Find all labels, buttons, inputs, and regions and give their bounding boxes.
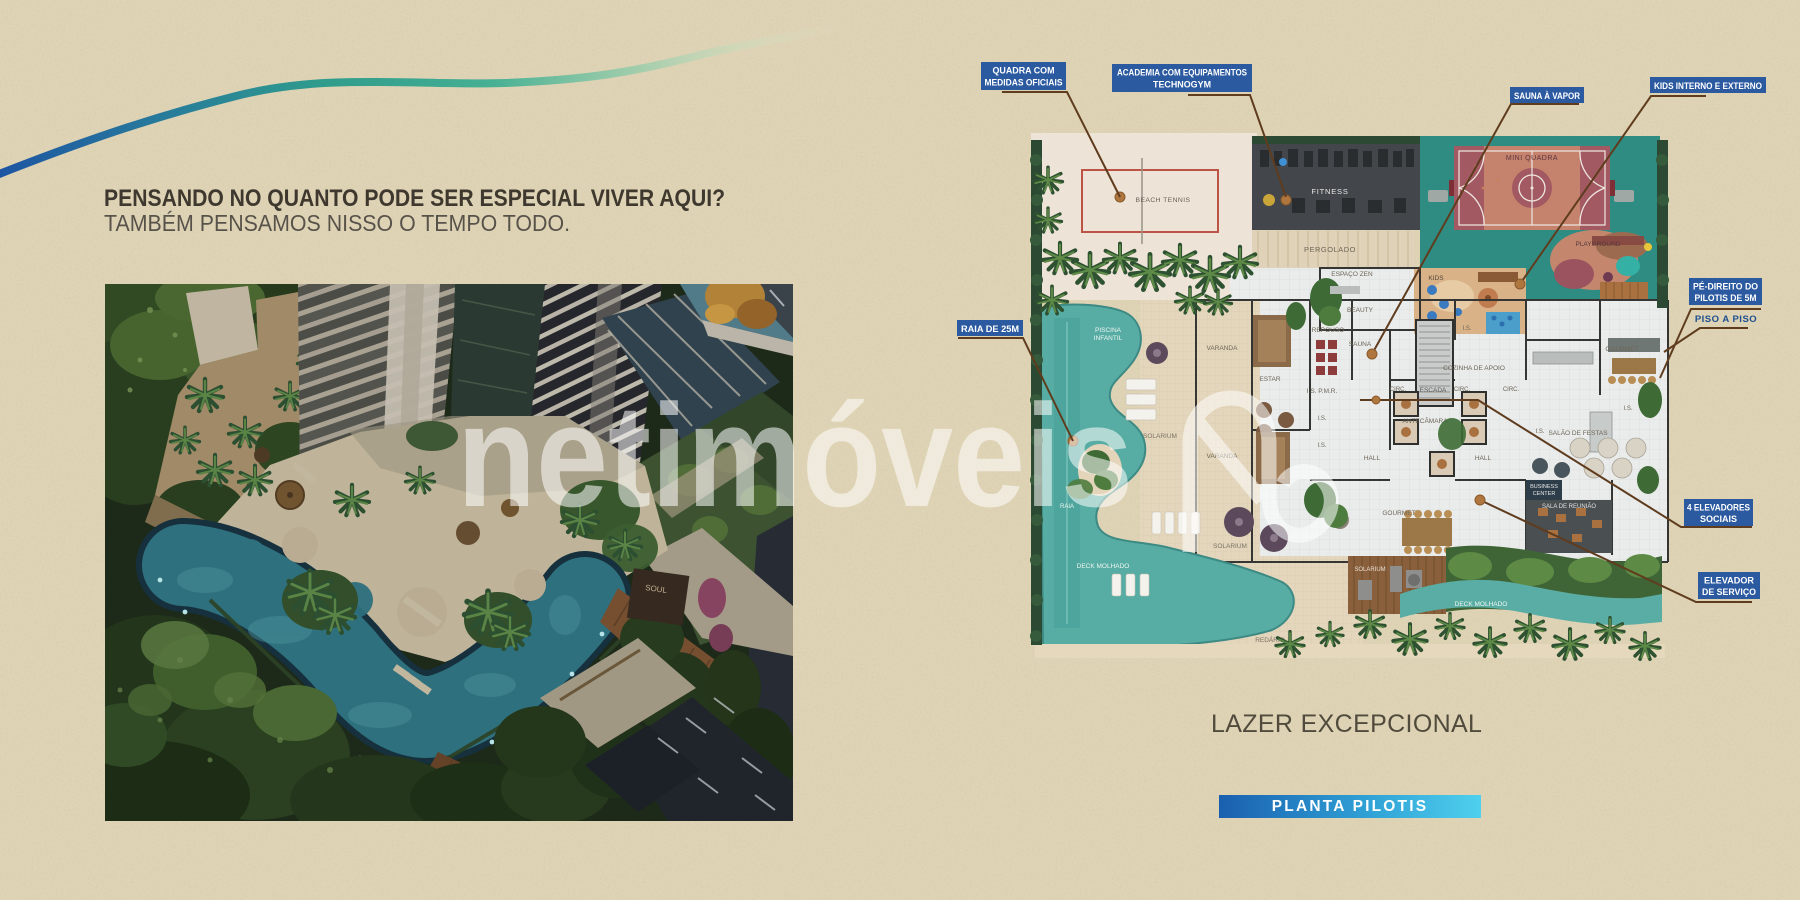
svg-text:PERGOLADO: PERGOLADO (1304, 245, 1356, 254)
svg-text:DE SERVIÇO: DE SERVIÇO (1702, 587, 1756, 597)
svg-text:PENSANDO NO QUANTO PODE SER ES: PENSANDO NO QUANTO PODE SER ESPECIAL VIV… (104, 185, 725, 212)
svg-text:KIDS INTERNO E EXTERNO: KIDS INTERNO E EXTERNO (1654, 81, 1762, 91)
svg-text:PÉ-DIREITO DO: PÉ-DIREITO DO (1693, 282, 1758, 292)
svg-text:SALA DE REUNIÃO: SALA DE REUNIÃO (1542, 503, 1596, 510)
svg-text:MEDIDAS OFICIAIS: MEDIDAS OFICIAIS (985, 78, 1063, 88)
svg-text:PLAYGROUND: PLAYGROUND (1575, 241, 1620, 248)
svg-text:SOLARIUM: SOLARIUM (1354, 567, 1385, 573)
svg-text:I.S.: I.S. (1317, 443, 1326, 449)
svg-text:DECK MOLHADO: DECK MOLHADO (1455, 601, 1508, 608)
svg-text:ELEVADOR: ELEVADOR (1704, 576, 1755, 586)
svg-text:I.S.: I.S. (1623, 406, 1632, 412)
svg-text:CIRC.: CIRC. (1503, 387, 1520, 393)
svg-text:netimóveis: netimóveis (457, 374, 1133, 537)
svg-text:DECK MOLHADO: DECK MOLHADO (1077, 563, 1130, 570)
svg-text:ACADEMIA COM EQUIPAMENTOS: ACADEMIA COM EQUIPAMENTOS (1117, 68, 1247, 78)
svg-text:GOURMET: GOURMET (1382, 510, 1415, 517)
svg-text:HALL: HALL (1475, 455, 1492, 462)
svg-text:SAUNA: SAUNA (1349, 341, 1372, 348)
svg-text:CENTER: CENTER (1533, 491, 1556, 497)
svg-text:SALÃO DE FESTAS: SALÃO DE FESTAS (1548, 428, 1608, 437)
svg-text:GOURMET: GOURMET (1605, 346, 1638, 353)
svg-text:PISO A PISO: PISO A PISO (1695, 314, 1757, 325)
svg-text:I.S.: I.S. (1317, 416, 1326, 422)
svg-text:HALL: HALL (1364, 455, 1381, 462)
svg-text:CIRC.: CIRC. (1454, 387, 1471, 393)
svg-text:BUSINESS: BUSINESS (1530, 484, 1558, 490)
svg-text:VARANDA: VARANDA (1207, 345, 1239, 352)
svg-text:TECHNOGYM: TECHNOGYM (1153, 80, 1211, 90)
svg-text:ESTAR: ESTAR (1259, 376, 1280, 383)
svg-text:PISCINA: PISCINA (1095, 327, 1122, 334)
svg-text:ESPAÇO ZEN: ESPAÇO ZEN (1331, 271, 1373, 278)
svg-text:I.S. P.M.R.: I.S. P.M.R. (1307, 388, 1338, 395)
svg-text:FITNESS: FITNESS (1311, 187, 1348, 196)
svg-text:4 ELEVADORES: 4 ELEVADORES (1687, 503, 1750, 513)
svg-text:CIRC.: CIRC. (1390, 387, 1407, 393)
svg-text:SOLARIUM: SOLARIUM (1143, 433, 1177, 440)
svg-text:SOCIAIS: SOCIAIS (1700, 514, 1737, 524)
svg-text:COZINHA DE APOIO: COZINHA DE APOIO (1443, 365, 1505, 372)
svg-text:SOLARIUM: SOLARIUM (1213, 543, 1247, 550)
svg-text:QUADRA COM: QUADRA COM (993, 66, 1055, 76)
svg-text:KIDS: KIDS (1428, 275, 1444, 282)
svg-text:INFANTIL: INFANTIL (1094, 335, 1123, 342)
svg-text:REPOUSO: REPOUSO (1312, 327, 1345, 334)
svg-text:ESCADA: ESCADA (1420, 387, 1447, 394)
svg-text:RAIA DE 25M: RAIA DE 25M (961, 324, 1019, 334)
svg-text:I.S.: I.S. (1535, 429, 1544, 435)
svg-text:BEAUTY: BEAUTY (1347, 307, 1374, 314)
svg-text:SAUNA À VAPOR: SAUNA À VAPOR (1514, 91, 1580, 101)
svg-text:PLANTA PILOTIS: PLANTA PILOTIS (1272, 798, 1429, 815)
svg-text:LAZER EXCEPCIONAL: LAZER EXCEPCIONAL (1211, 710, 1482, 738)
svg-text:BEACH TENNIS: BEACH TENNIS (1136, 197, 1191, 204)
svg-text:MINI QUADRA: MINI QUADRA (1506, 155, 1558, 162)
svg-text:TAMBÉM PENSAMOS NISSO O TEMPO: TAMBÉM PENSAMOS NISSO O TEMPO TODO. (104, 210, 570, 236)
svg-text:I.S.: I.S. (1462, 326, 1471, 332)
svg-text:PILOTIS DE 5M: PILOTIS DE 5M (1695, 293, 1757, 303)
